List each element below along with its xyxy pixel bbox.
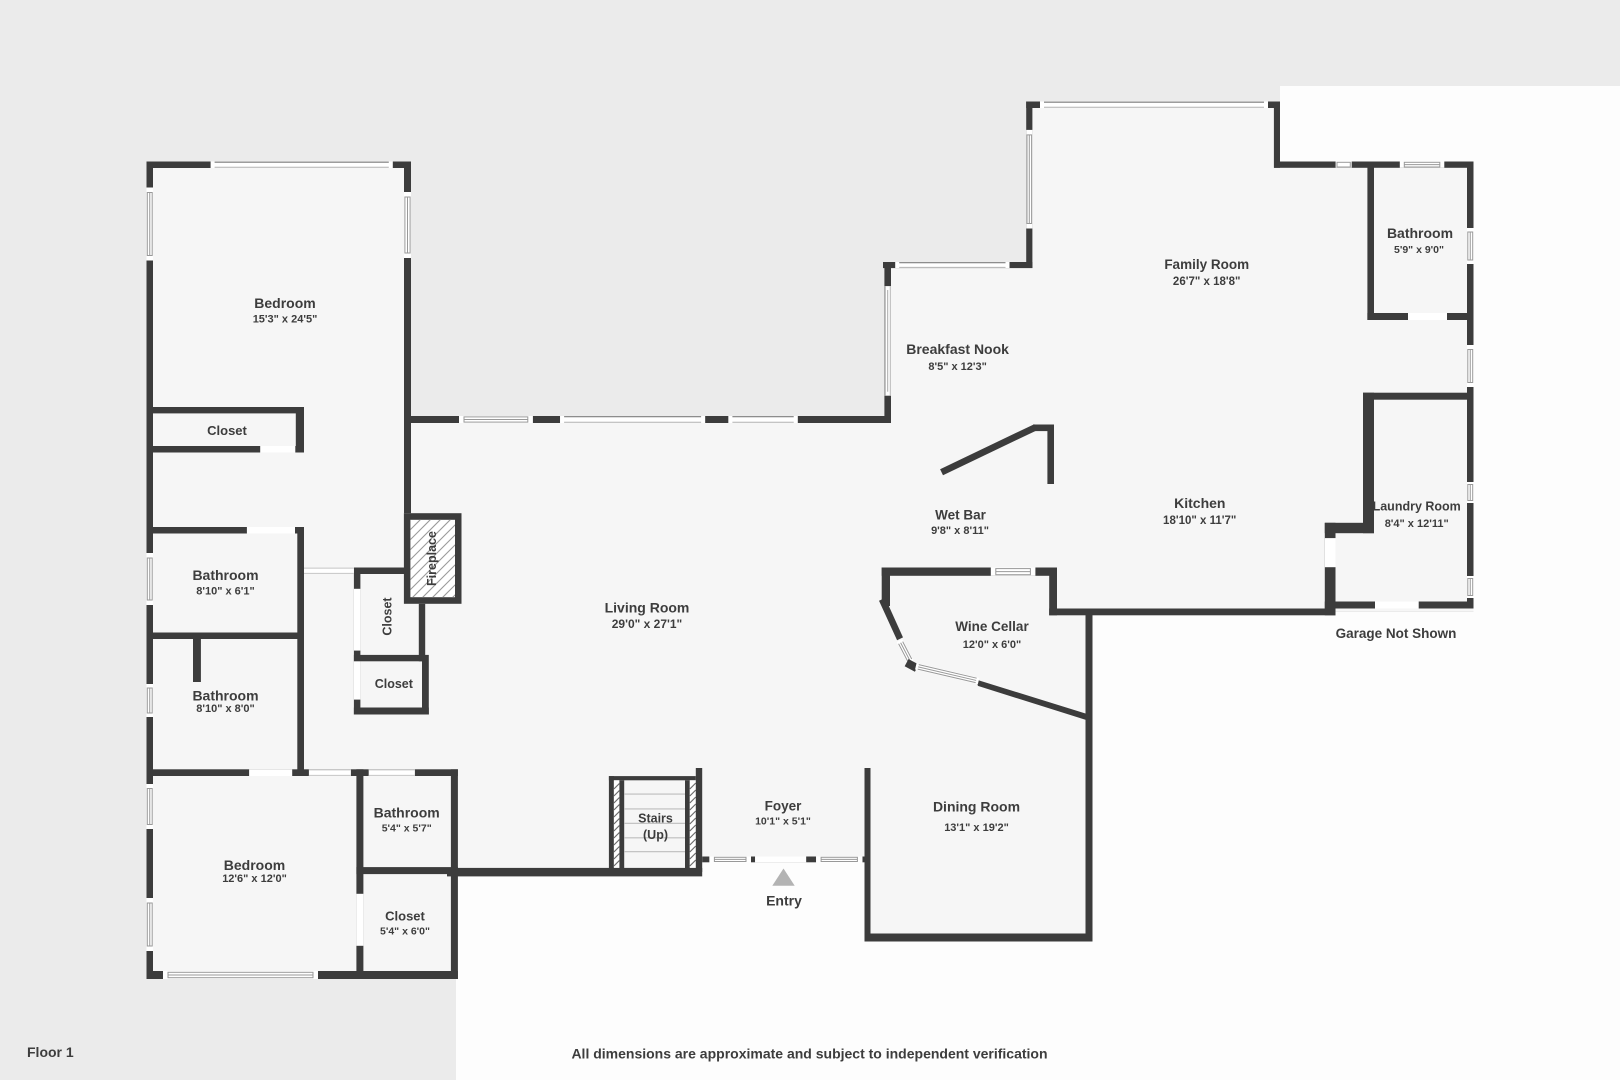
svg-text:Bedroom: Bedroom: [224, 857, 285, 873]
svg-text:10'1" x 5'1": 10'1" x 5'1": [755, 816, 811, 828]
svg-text:Breakfast Nook: Breakfast Nook: [906, 341, 1009, 357]
svg-text:Closet: Closet: [385, 909, 425, 924]
svg-text:Closet: Closet: [380, 597, 394, 636]
svg-text:Bathroom: Bathroom: [192, 567, 258, 583]
svg-text:8'10" x 8'0": 8'10" x 8'0": [196, 703, 254, 715]
svg-text:9'8" x 8'11": 9'8" x 8'11": [931, 525, 989, 537]
svg-text:Stairs: Stairs: [638, 812, 673, 826]
svg-text:Living Room: Living Room: [605, 600, 690, 616]
svg-text:12'0" x 6'0": 12'0" x 6'0": [963, 639, 1021, 651]
svg-text:(Up): (Up): [643, 828, 668, 842]
svg-text:Foyer: Foyer: [765, 799, 803, 814]
svg-text:15'3" x 24'5": 15'3" x 24'5": [253, 314, 318, 326]
svg-text:5'4" x 5'7": 5'4" x 5'7": [382, 823, 432, 835]
svg-text:Bedroom: Bedroom: [254, 295, 315, 311]
svg-text:Wet Bar: Wet Bar: [935, 508, 987, 523]
svg-text:Bathroom: Bathroom: [374, 805, 440, 821]
svg-text:12'6" x 12'0": 12'6" x 12'0": [222, 873, 287, 885]
svg-text:Laundry Room: Laundry Room: [1373, 500, 1461, 514]
svg-text:Closet: Closet: [375, 677, 414, 691]
svg-text:Fireplace: Fireplace: [425, 531, 439, 586]
svg-text:All dimensions are approximate: All dimensions are approximate and subje…: [571, 1046, 1047, 1062]
svg-text:Bathroom: Bathroom: [192, 688, 258, 704]
svg-text:29'0" x 27'1": 29'0" x 27'1": [612, 617, 682, 631]
svg-text:Kitchen: Kitchen: [1174, 495, 1225, 511]
svg-text:5'4" x 6'0": 5'4" x 6'0": [380, 926, 430, 938]
svg-text:Dining Room: Dining Room: [933, 799, 1020, 815]
svg-text:Wine Cellar: Wine Cellar: [955, 619, 1029, 634]
svg-text:13'1" x 19'2": 13'1" x 19'2": [944, 822, 1009, 834]
svg-text:8'10" x 6'1": 8'10" x 6'1": [196, 586, 254, 598]
svg-text:26'7" x 18'8": 26'7" x 18'8": [1173, 276, 1241, 288]
svg-text:8'4" x 12'11": 8'4" x 12'11": [1385, 518, 1449, 530]
svg-text:Family Room: Family Room: [1164, 257, 1249, 272]
svg-text:Bathroom: Bathroom: [1387, 225, 1453, 241]
svg-text:Garage Not Shown: Garage Not Shown: [1336, 626, 1457, 641]
svg-text:8'5" x 12'3": 8'5" x 12'3": [928, 361, 986, 373]
svg-text:Floor 1: Floor 1: [27, 1044, 74, 1060]
svg-text:Closet: Closet: [207, 423, 247, 438]
svg-text:Entry: Entry: [766, 893, 802, 909]
svg-text:5'9" x 9'0": 5'9" x 9'0": [1394, 244, 1444, 256]
svg-text:18'10" x 11'7": 18'10" x 11'7": [1163, 515, 1236, 527]
